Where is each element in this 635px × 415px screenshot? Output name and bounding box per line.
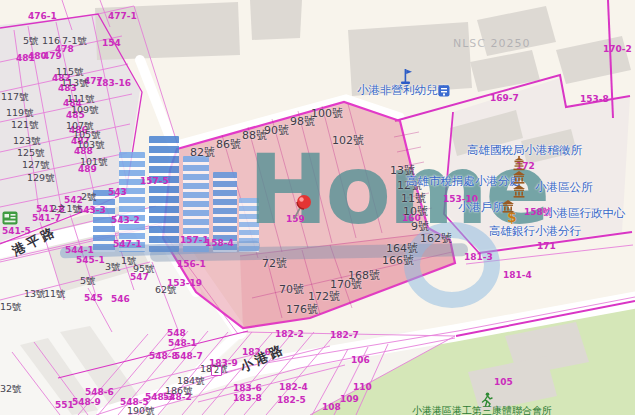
gov-building-icon <box>512 184 526 198</box>
pushpin-icon[interactable] <box>290 193 316 221</box>
green-badge-icon <box>2 211 18 225</box>
runner-icon <box>481 392 493 407</box>
pagoda-icon <box>512 156 526 171</box>
gov-building-icon <box>501 199 515 213</box>
watermark-swirl <box>404 222 500 308</box>
blue-badge-icon <box>438 85 450 97</box>
flag-icon <box>398 68 413 85</box>
gov-building-icon <box>512 170 526 184</box>
map-canvas[interactable]: Home 476-1477-14814804794781544824834771… <box>0 0 635 415</box>
